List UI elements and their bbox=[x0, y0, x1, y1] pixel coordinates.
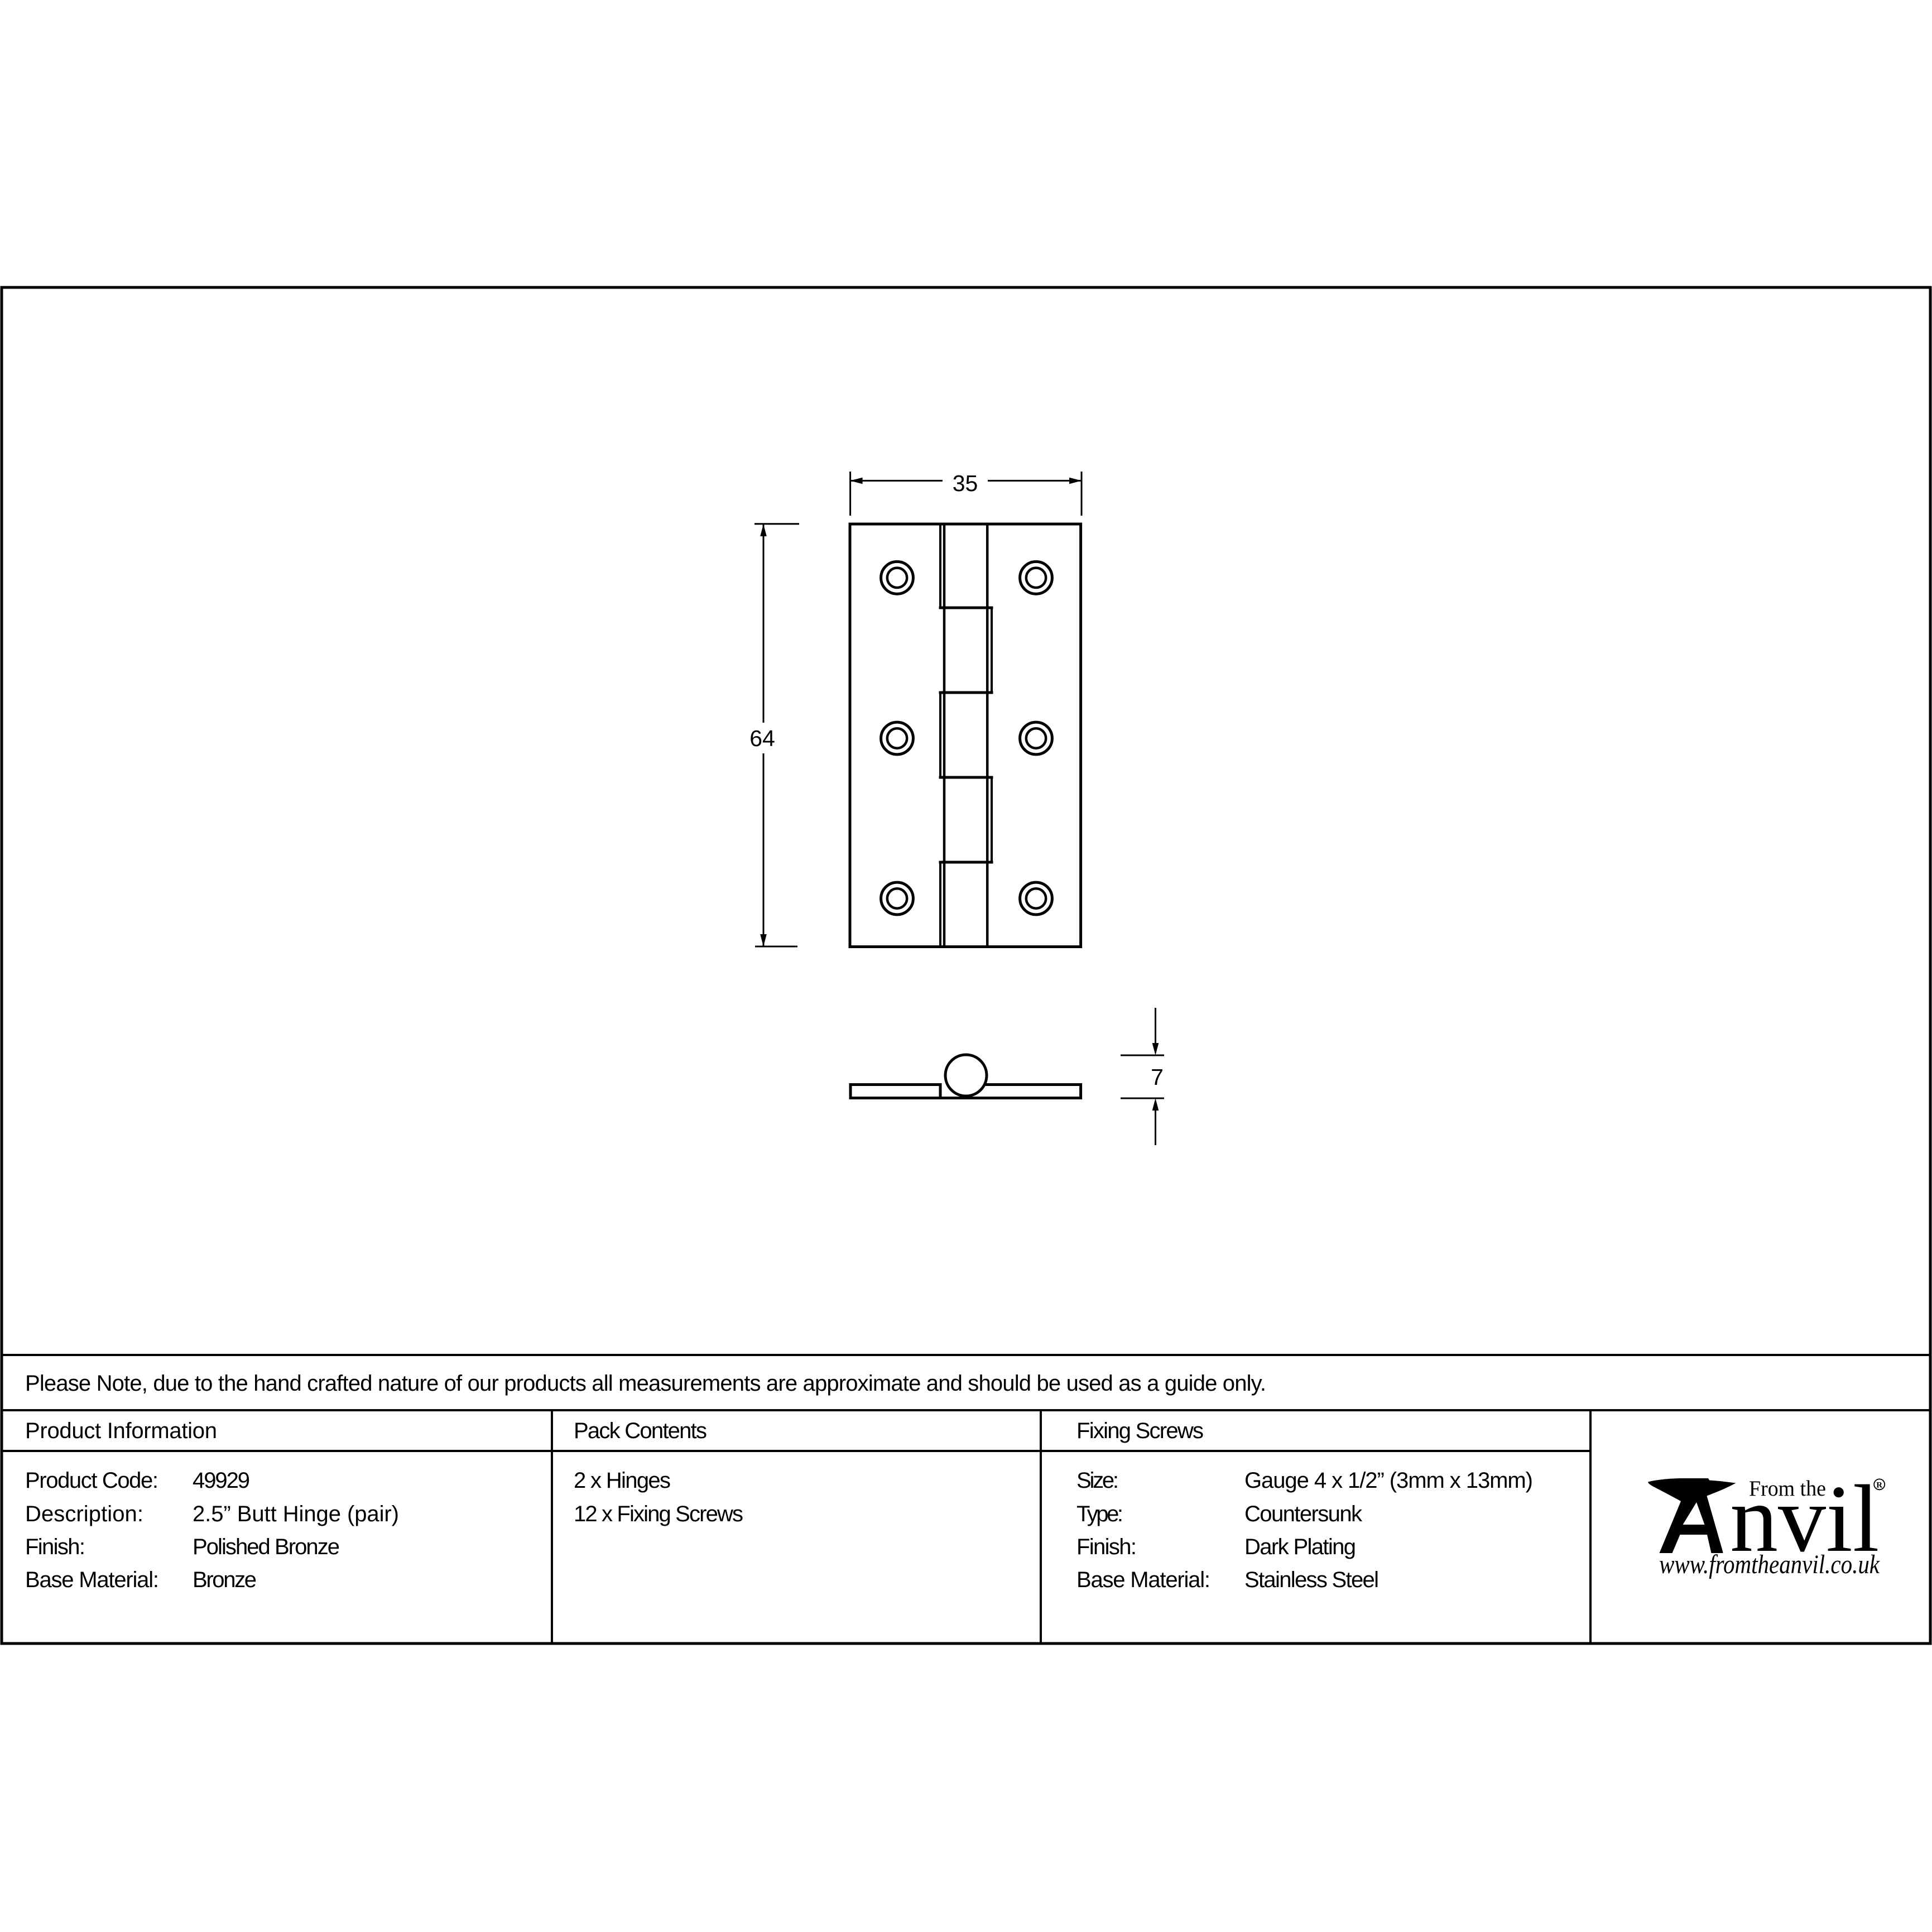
svg-text:12 x Fixing Screws: 12 x Fixing Screws bbox=[574, 1502, 743, 1526]
svg-text:Finish:: Finish: bbox=[25, 1535, 85, 1559]
svg-text:Product Information: Product Information bbox=[25, 1419, 217, 1443]
svg-text:www.fromtheanvil.co.uk: www.fromtheanvil.co.uk bbox=[1659, 1550, 1880, 1579]
svg-text:2 x Hinges: 2 x Hinges bbox=[574, 1468, 671, 1493]
svg-text:2.5” Butt Hinge (pair): 2.5” Butt Hinge (pair) bbox=[193, 1502, 399, 1526]
svg-text:49929: 49929 bbox=[193, 1468, 250, 1493]
svg-text:Dark Plating: Dark Plating bbox=[1244, 1535, 1356, 1559]
svg-text:Description:: Description: bbox=[25, 1502, 143, 1526]
svg-text:Product Code:: Product Code: bbox=[25, 1468, 158, 1493]
svg-text:Polished Bronze: Polished Bronze bbox=[193, 1535, 340, 1559]
svg-text:Base Material:: Base Material: bbox=[1076, 1568, 1210, 1592]
svg-text:Base Material:: Base Material: bbox=[25, 1568, 159, 1592]
svg-text:Size:: Size: bbox=[1076, 1468, 1119, 1493]
svg-text:Countersunk: Countersunk bbox=[1244, 1502, 1363, 1526]
svg-text:Bronze: Bronze bbox=[193, 1568, 257, 1592]
svg-text:R: R bbox=[1876, 1481, 1882, 1489]
svg-text:Please Note, due to the hand c: Please Note, due to the hand crafted nat… bbox=[25, 1371, 1266, 1396]
svg-text:Stainless Steel: Stainless Steel bbox=[1244, 1568, 1379, 1592]
svg-text:7: 7 bbox=[1151, 1064, 1164, 1090]
svg-text:35: 35 bbox=[953, 470, 978, 496]
svg-text:Gauge 4 x 1/2” (3mm x 13mm): Gauge 4 x 1/2” (3mm x 13mm) bbox=[1244, 1468, 1533, 1493]
svg-text:Type:: Type: bbox=[1076, 1502, 1123, 1526]
svg-text:64: 64 bbox=[749, 725, 775, 751]
svg-text:Finish:: Finish: bbox=[1076, 1535, 1137, 1559]
svg-text:Fixing Screws: Fixing Screws bbox=[1076, 1419, 1204, 1443]
svg-text:Pack Contents: Pack Contents bbox=[574, 1419, 707, 1443]
